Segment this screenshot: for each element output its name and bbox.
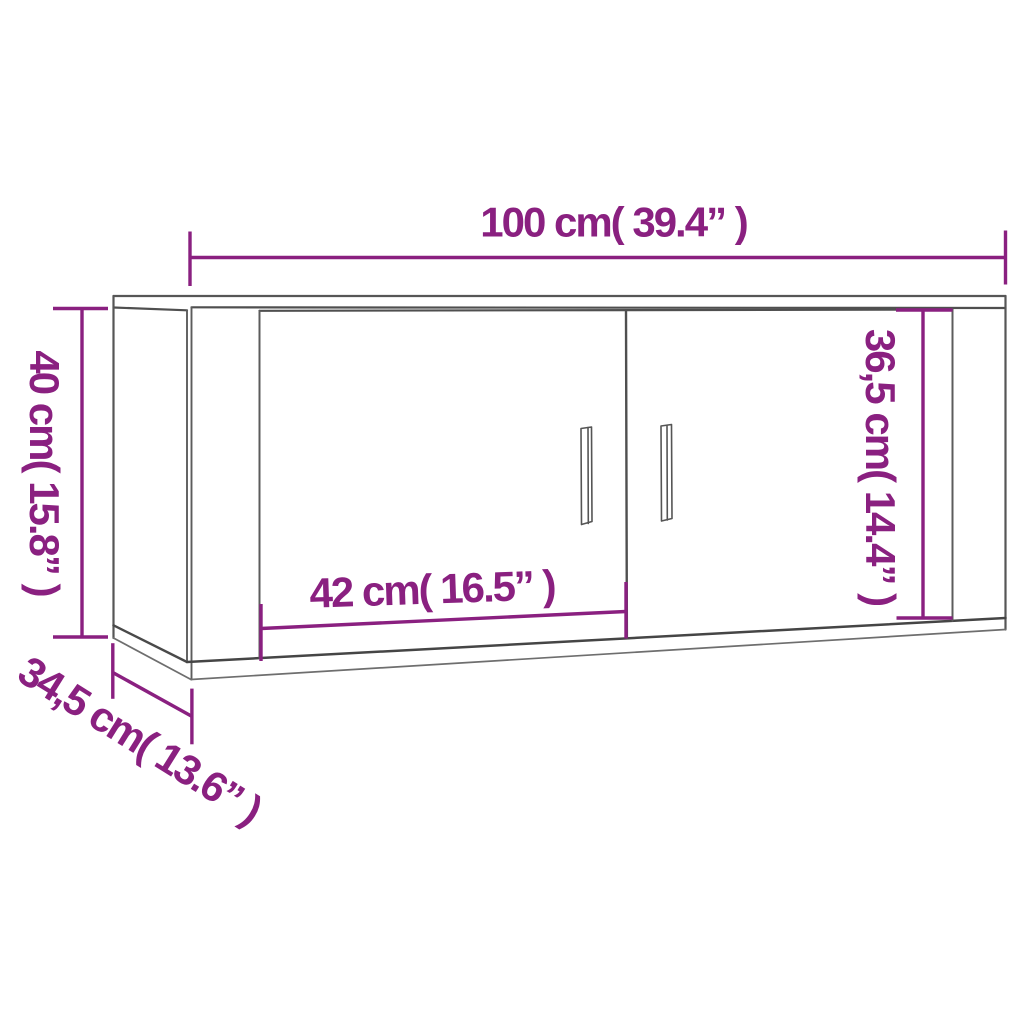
svg-text:36,5 cm( 14.4” ): 36,5 cm( 14.4” ) — [857, 329, 904, 605]
svg-text:40 cm( 15.8” ): 40 cm( 15.8” ) — [21, 350, 68, 595]
svg-text:42 cm( 16.5” ): 42 cm( 16.5” ) — [309, 561, 556, 617]
svg-text:100 cm( 39.4” ): 100 cm( 39.4” ) — [480, 199, 747, 246]
